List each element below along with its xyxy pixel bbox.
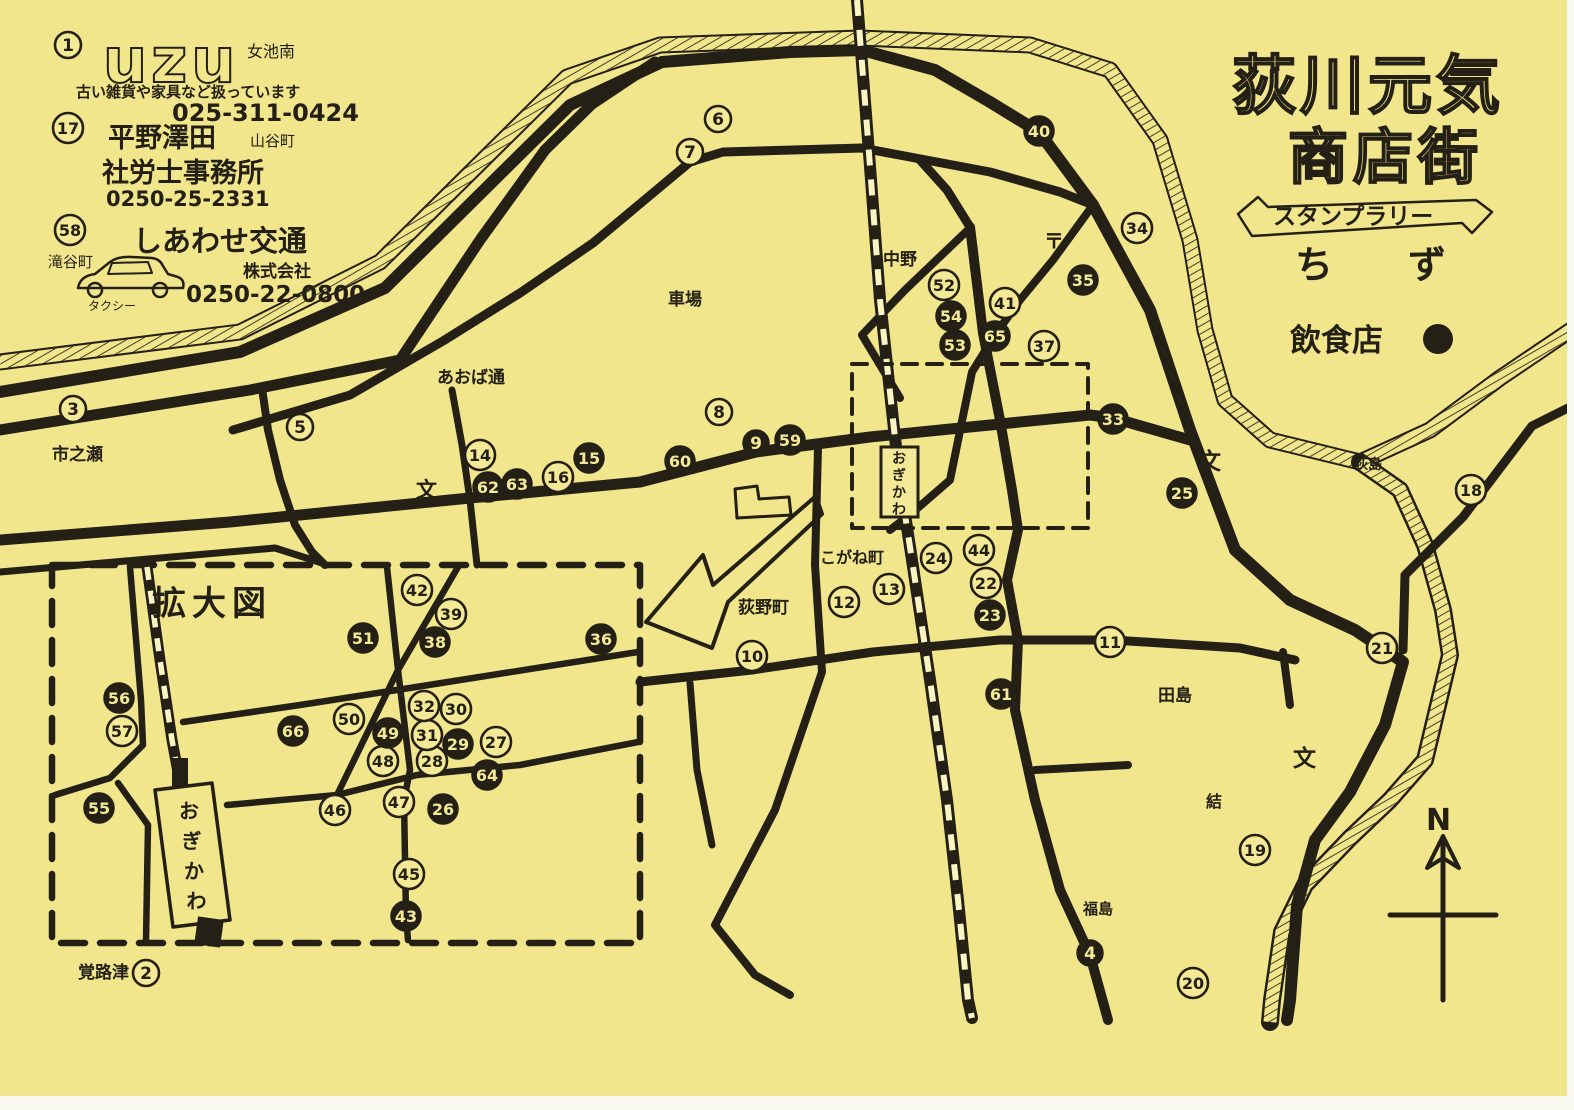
- svg-text:15: 15: [578, 449, 600, 468]
- road-ogino-vertical: [690, 683, 712, 845]
- l-shaped-building: [735, 486, 791, 518]
- compass-north: N: [1390, 803, 1496, 1000]
- svg-text:16: 16: [547, 468, 569, 487]
- svg-text:65: 65: [984, 327, 1006, 346]
- inset-panel: [52, 565, 640, 948]
- place-label-post-mark: 〒: [1044, 229, 1064, 253]
- ad-list: uzu 女池南 古い雑貨や家具など扱っています 025-311-0424 平野澤…: [48, 24, 365, 313]
- marker-62: 62: [473, 472, 503, 502]
- marker-40: 40: [1024, 116, 1054, 146]
- svg-text:48: 48: [372, 752, 394, 771]
- marker-23: 23: [975, 600, 1005, 630]
- marker-46: 46: [320, 795, 350, 825]
- svg-text:わ: わ: [892, 502, 906, 518]
- marker-54: 54: [936, 301, 966, 331]
- marker-63: 63: [502, 469, 532, 499]
- ad-hs-name1: 平野澤田: [108, 123, 216, 154]
- svg-text:45: 45: [398, 865, 420, 884]
- svg-text:29: 29: [447, 735, 469, 754]
- station-sign-main: おぎかわ: [881, 447, 918, 518]
- svg-text:5: 5: [294, 418, 306, 438]
- svg-text:44: 44: [968, 541, 990, 560]
- marker-29: 29: [443, 729, 473, 759]
- svg-text:12: 12: [833, 593, 855, 612]
- marker-57: 57: [107, 716, 137, 746]
- marker-47: 47: [384, 787, 414, 817]
- ad-sk-area: 滝谷町: [48, 253, 93, 271]
- inset-dashed-border: [52, 565, 640, 943]
- hand-drawn-map: N 荻川元気 商店街 スタンプラリー ち ず 飲食店 uzu 女池南 古い雑貨や…: [0, 0, 1574, 1110]
- marker-49: 49: [373, 718, 403, 748]
- svg-text:か: か: [184, 859, 204, 883]
- marker-58: 58: [55, 215, 85, 245]
- place-label-school-2: 文: [1198, 448, 1222, 475]
- svg-text:33: 33: [1102, 410, 1124, 429]
- svg-text:59: 59: [779, 431, 801, 450]
- svg-text:26: 26: [432, 800, 454, 819]
- svg-text:か: か: [892, 485, 906, 501]
- place-label-ichinose: 市之瀬: [52, 444, 103, 465]
- svg-text:お: お: [179, 799, 199, 823]
- svg-text:38: 38: [424, 633, 446, 652]
- map-canvas: N 荻川元気 商店街 スタンプラリー ち ず 飲食店 uzu 女池南 古い雑貨や…: [0, 0, 1574, 1110]
- road-vertical-aoba: [452, 390, 477, 565]
- marker-50: 50: [334, 704, 364, 734]
- svg-text:1: 1: [62, 36, 74, 56]
- title-block: 荻川元気 商店街 スタンプラリー ち ず 飲食店: [1232, 50, 1500, 359]
- svg-text:ぎ: ぎ: [182, 829, 202, 853]
- svg-text:37: 37: [1033, 337, 1055, 356]
- map-word-2: ず: [1408, 243, 1446, 287]
- ad-uzu-area: 女池南: [247, 42, 295, 61]
- place-label-school-3: 文: [1293, 745, 1317, 772]
- marker-42: 42: [402, 575, 432, 605]
- marker-59: 59: [775, 425, 805, 455]
- svg-text:53: 53: [944, 336, 966, 355]
- marker-16: 16: [543, 462, 573, 492]
- marker-4: 4: [1077, 940, 1103, 966]
- svg-text:10: 10: [741, 647, 763, 666]
- svg-text:お: お: [892, 451, 906, 467]
- marker-45: 45: [394, 859, 424, 889]
- marker-21: 21: [1367, 633, 1397, 663]
- marker-5: 5: [287, 414, 313, 440]
- svg-text:ぎ: ぎ: [892, 467, 906, 484]
- scan-edge-bottom: [0, 1096, 1574, 1110]
- marker-8: 8: [706, 399, 732, 425]
- marker-33: 33: [1098, 404, 1128, 434]
- marker-13: 13: [874, 574, 904, 604]
- svg-text:60: 60: [669, 452, 691, 471]
- marker-56: 56: [104, 683, 134, 713]
- svg-text:63: 63: [506, 475, 528, 494]
- marker-38: 38: [420, 627, 450, 657]
- svg-text:19: 19: [1244, 841, 1266, 860]
- svg-text:66: 66: [282, 722, 304, 741]
- svg-text:61: 61: [990, 685, 1012, 704]
- place-label-kurumaba: 車場: [668, 289, 702, 310]
- inset-roads: [55, 567, 638, 941]
- svg-text:42: 42: [406, 581, 428, 600]
- place-label-kogane-cho: こがね町: [820, 548, 884, 567]
- marker-9: 9: [743, 430, 769, 456]
- marker-19: 19: [1240, 835, 1270, 865]
- place-label-aoba-dori: あおば通: [437, 368, 505, 388]
- road-northeast-18: [1403, 405, 1574, 650]
- scan-edge-right: [1567, 0, 1574, 1110]
- marker-22: 22: [971, 568, 1001, 598]
- svg-text:20: 20: [1182, 974, 1204, 993]
- marker-34: 34: [1122, 213, 1152, 243]
- svg-text:54: 54: [940, 307, 962, 326]
- marker-35: 35: [1068, 265, 1098, 295]
- marker-31: 31: [412, 720, 442, 750]
- place-label-school-1: 文: [416, 478, 438, 502]
- marker-26: 26: [428, 794, 458, 824]
- place-label-ogishima: 荻島: [1354, 456, 1382, 473]
- svg-text:39: 39: [440, 605, 462, 624]
- marker-52: 52: [929, 270, 959, 300]
- svg-text:28: 28: [421, 752, 443, 771]
- svg-text:43: 43: [395, 907, 417, 926]
- marker-2: 2: [133, 960, 159, 986]
- compass-label: N: [1426, 803, 1451, 838]
- place-label-musubi: 結: [1206, 792, 1222, 811]
- svg-text:13: 13: [878, 580, 900, 599]
- title-line1: 荻川元気: [1232, 50, 1500, 124]
- svg-text:わ: わ: [187, 889, 207, 913]
- place-label-nakano: 中野: [883, 249, 917, 270]
- map-word-1: ち: [1295, 243, 1333, 287]
- ad-sk-name: しあわせ交通: [133, 224, 307, 258]
- inset-label: 拡大図: [152, 584, 272, 624]
- marker-17: 17: [53, 113, 83, 143]
- ad-sk-phone: 0250-22-0800: [186, 282, 365, 308]
- marker-60: 60: [665, 446, 695, 476]
- marker-14: 14: [465, 440, 495, 470]
- svg-text:9: 9: [750, 434, 762, 454]
- svg-text:56: 56: [108, 689, 130, 708]
- place-label-fukushima: 福島: [1082, 900, 1113, 918]
- marker-30: 30: [441, 694, 471, 724]
- inset-pointer-arrow: [646, 496, 822, 648]
- svg-text:25: 25: [1171, 484, 1193, 503]
- svg-text:18: 18: [1460, 481, 1482, 500]
- svg-text:52: 52: [933, 276, 955, 295]
- svg-text:64: 64: [476, 766, 498, 785]
- inset-station-platform-top: [172, 758, 188, 786]
- svg-text:55: 55: [88, 799, 110, 818]
- marker-10: 10: [737, 641, 767, 671]
- svg-text:17: 17: [57, 119, 79, 138]
- svg-text:8: 8: [713, 403, 725, 423]
- place-label-kakurozu: 覚路津: [78, 962, 129, 983]
- legend-label: 飲食店: [1290, 323, 1383, 359]
- marker-6: 6: [705, 106, 731, 132]
- marker-55: 55: [84, 793, 114, 823]
- svg-text:7: 7: [684, 143, 696, 163]
- svg-text:41: 41: [994, 294, 1016, 313]
- svg-text:30: 30: [445, 700, 467, 719]
- marker-37: 37: [1029, 331, 1059, 361]
- svg-text:23: 23: [979, 606, 1001, 625]
- svg-text:34: 34: [1126, 219, 1148, 238]
- marker-32: 32: [409, 691, 439, 721]
- marker-7: 7: [677, 139, 703, 165]
- ad-hs-area: 山谷町: [250, 132, 295, 150]
- marker-27: 27: [481, 727, 511, 757]
- banner-label: スタンプラリー: [1273, 204, 1433, 230]
- svg-text:57: 57: [111, 722, 133, 741]
- svg-text:58: 58: [59, 221, 81, 240]
- marker-18: 18: [1456, 475, 1486, 505]
- marker-1: 1: [55, 32, 81, 58]
- ad-uzu: uzu 女池南 古い雑貨や家具など扱っています 025-311-0424: [76, 24, 359, 127]
- marker-39: 39: [436, 599, 466, 629]
- svg-text:46: 46: [324, 801, 346, 820]
- road-southwest: [0, 548, 322, 572]
- marker-53: 53: [940, 330, 970, 360]
- svg-text:24: 24: [925, 549, 947, 568]
- svg-text:22: 22: [975, 574, 997, 593]
- ad-sk-vehicle: タクシー: [88, 299, 136, 313]
- ad-hs-name2: 社労士事務所: [102, 157, 264, 189]
- ad-shiawase-kotsu: しあわせ交通 株式会社 滝谷町 タクシー 0250-22-0800: [48, 224, 365, 313]
- marker-48: 48: [368, 746, 398, 776]
- place-label-tajima: 田島: [1158, 685, 1192, 706]
- ad-hs-phone: 0250-25-2331: [106, 187, 270, 211]
- marker-24: 24: [921, 543, 951, 573]
- road-stub-fukushima: [1035, 765, 1128, 770]
- svg-text:62: 62: [477, 478, 499, 497]
- svg-text:6: 6: [712, 110, 724, 130]
- taxi-icon: [78, 257, 183, 297]
- svg-text:4: 4: [1084, 944, 1096, 964]
- marker-61: 61: [986, 679, 1016, 709]
- marker-3: 3: [60, 396, 86, 422]
- ad-sk-sub: 株式会社: [243, 261, 311, 282]
- inset-title: 拡大図: [152, 584, 272, 624]
- svg-text:36: 36: [590, 630, 612, 649]
- marker-20: 20: [1178, 968, 1208, 998]
- marker-11: 11: [1095, 627, 1125, 657]
- marker-51: 51: [348, 623, 378, 653]
- svg-text:27: 27: [485, 733, 507, 752]
- svg-text:31: 31: [416, 726, 438, 745]
- svg-text:49: 49: [377, 724, 399, 743]
- title-line2: 商店街: [1288, 123, 1478, 193]
- svg-text:32: 32: [413, 697, 435, 716]
- svg-text:35: 35: [1072, 271, 1094, 290]
- marker-65: 65: [980, 321, 1010, 351]
- ad-hirano-sawada: 平野澤田 山谷町 社労士事務所 0250-25-2331: [102, 123, 295, 211]
- svg-text:14: 14: [469, 446, 491, 465]
- svg-text:21: 21: [1371, 639, 1393, 658]
- svg-text:3: 3: [67, 400, 79, 420]
- marker-43: 43: [391, 901, 421, 931]
- marker-25: 25: [1167, 478, 1197, 508]
- inset-railway: [147, 567, 224, 948]
- place-label-oginomachi: 荻野町: [738, 597, 789, 618]
- marker-36: 36: [586, 624, 616, 654]
- marker-66: 66: [278, 716, 308, 746]
- river-band-upper-right: [1360, 328, 1574, 462]
- svg-text:11: 11: [1099, 633, 1121, 652]
- svg-text:50: 50: [338, 710, 360, 729]
- svg-text:2: 2: [140, 964, 152, 984]
- station-sign-inset: おぎかわ: [179, 799, 207, 913]
- svg-text:51: 51: [352, 629, 374, 648]
- svg-text:47: 47: [388, 793, 410, 812]
- svg-text:40: 40: [1028, 122, 1050, 141]
- legend-filled-dot: [1423, 324, 1453, 354]
- legend-restaurant: 飲食店: [1290, 323, 1453, 359]
- marker-44: 44: [964, 535, 994, 565]
- marker-64: 64: [472, 760, 502, 790]
- marker-41: 41: [990, 288, 1020, 318]
- marker-12: 12: [829, 587, 859, 617]
- marker-15: 15: [574, 443, 604, 473]
